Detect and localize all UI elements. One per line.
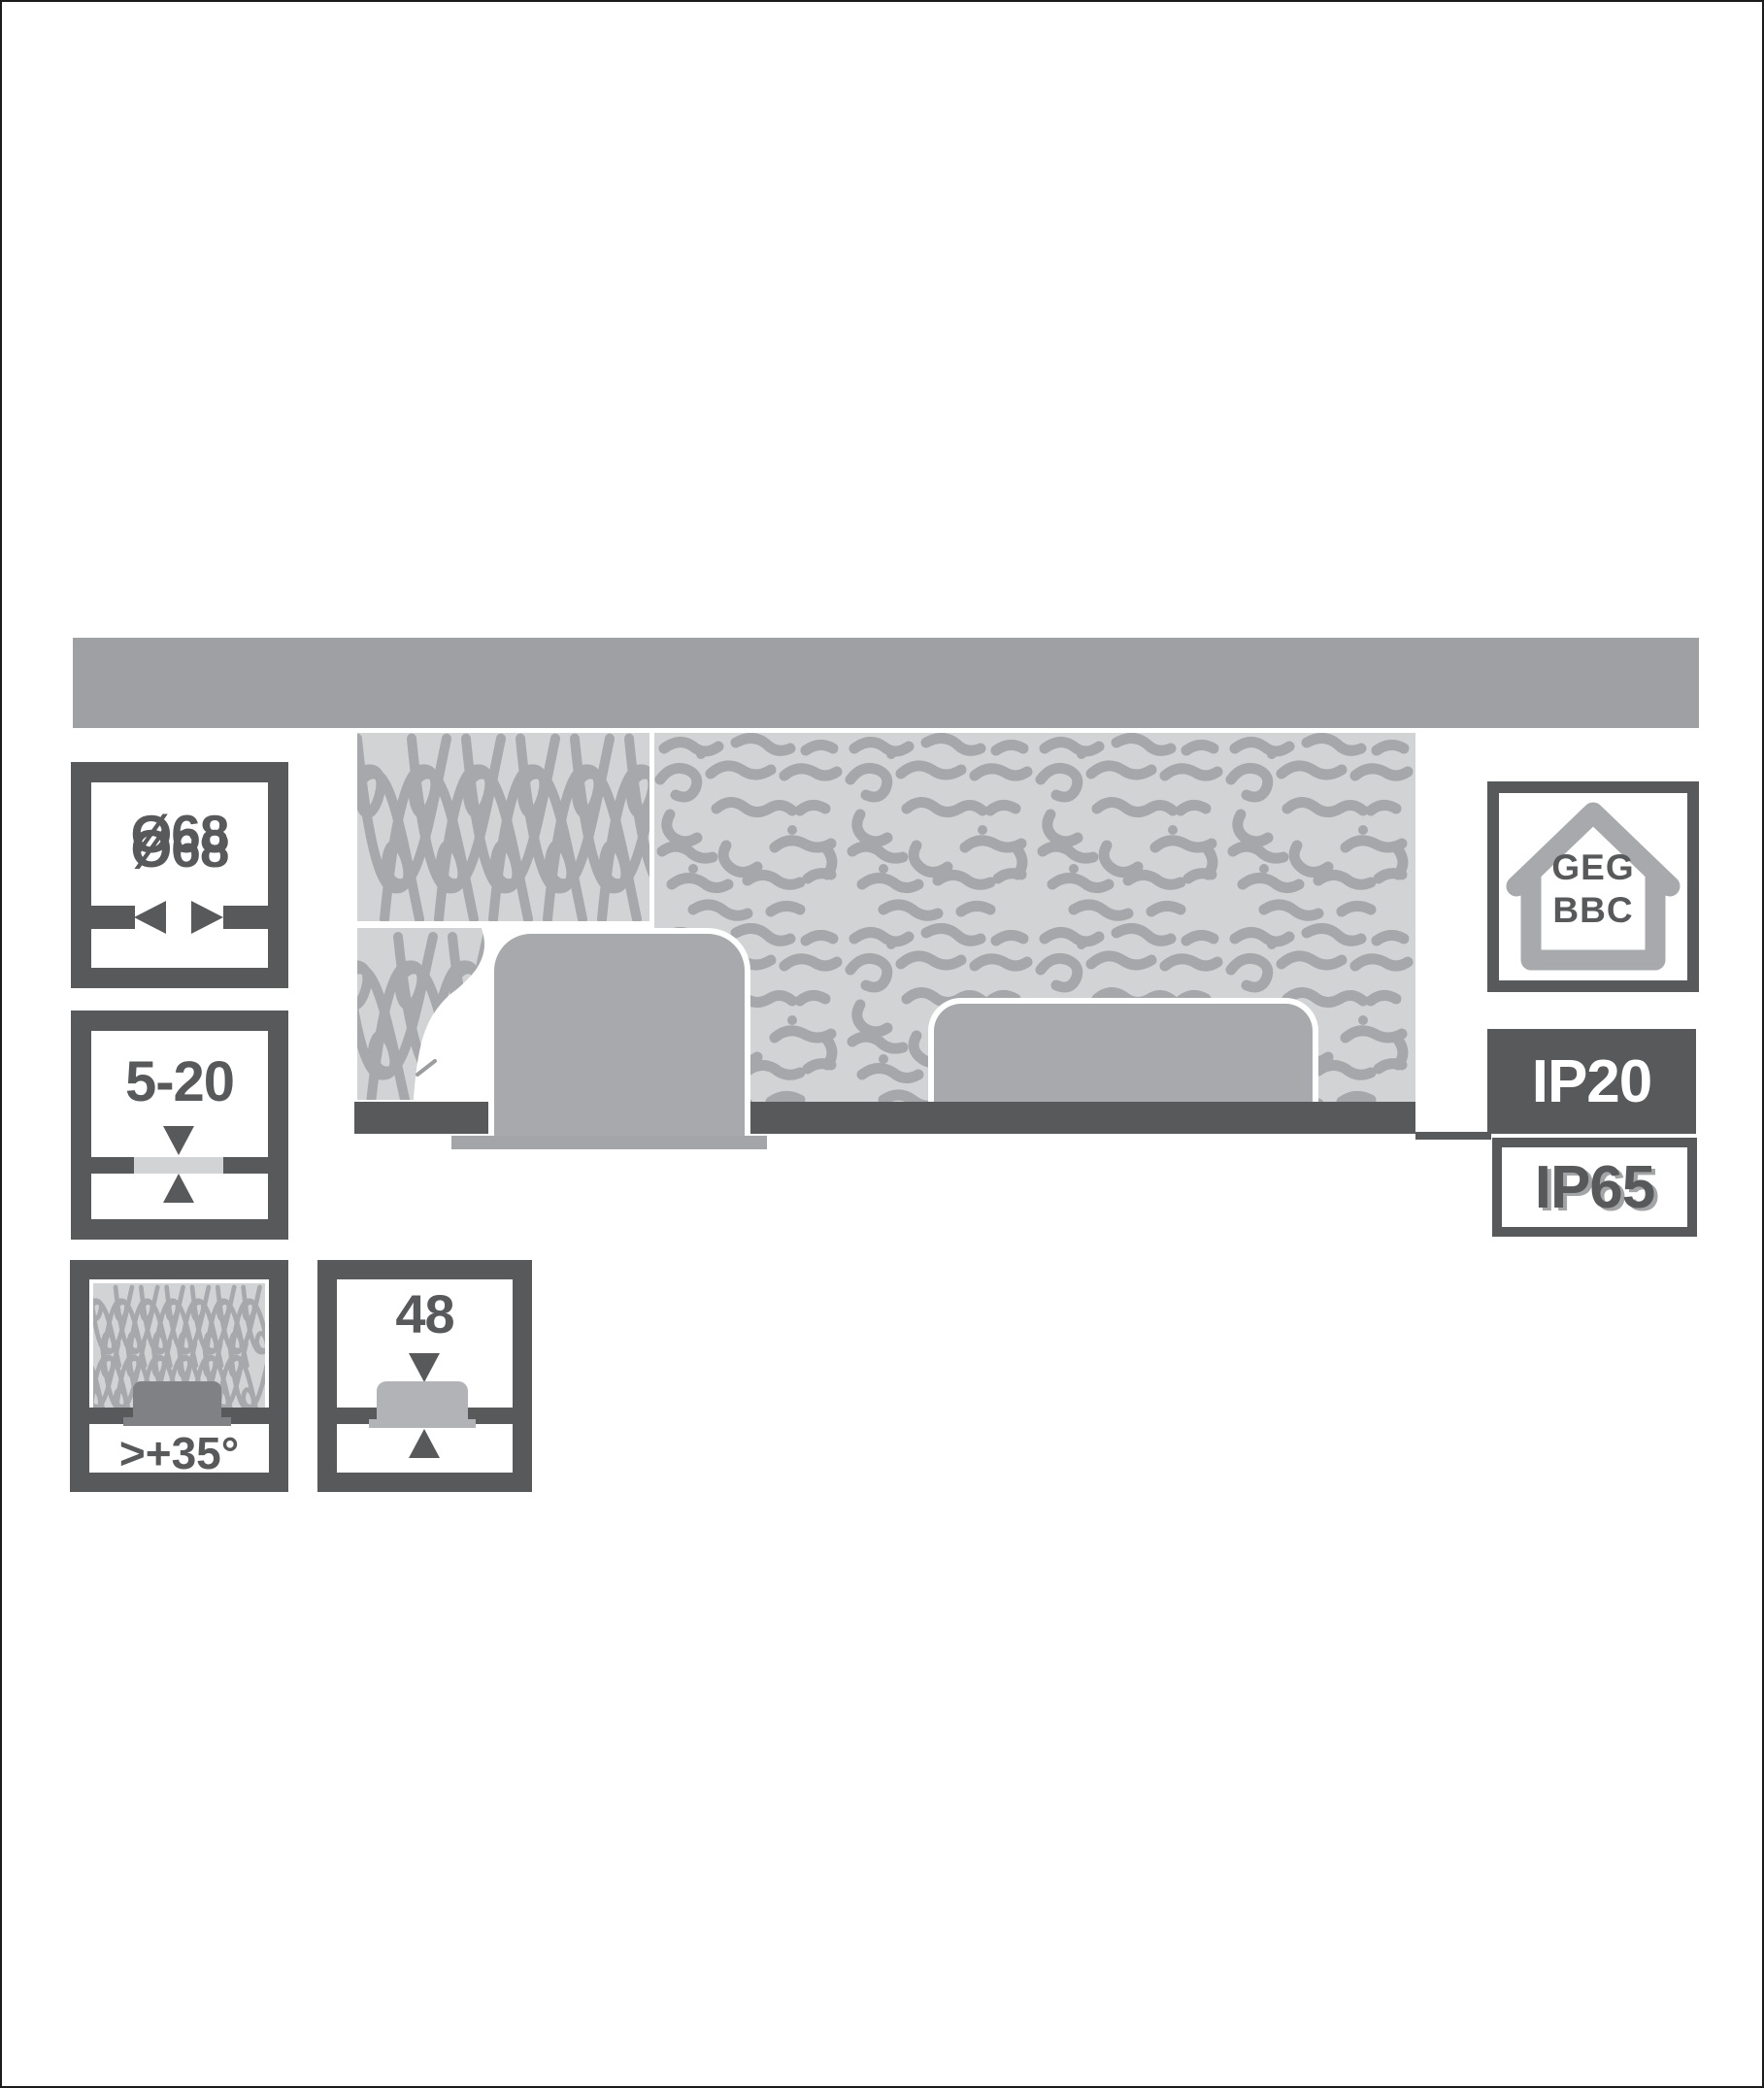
fixture-silhouette-flange (123, 1417, 231, 1426)
recess-depth-badge: 48 (317, 1260, 532, 1492)
depth-label: 48 (337, 1287, 513, 1342)
arrow-down-icon (163, 1126, 194, 1155)
panel-strip (134, 1157, 223, 1174)
building-code-badge: GEG BBC (1487, 781, 1699, 992)
panel-thickness-badge: 5-20 (71, 1011, 288, 1240)
fixture-shape (377, 1381, 468, 1420)
cutout-diameter-badge: Ø68 Ø68 (71, 762, 288, 988)
arrow-right-icon (191, 901, 223, 934)
driver-box (928, 998, 1318, 1102)
bbc-label: BBC (1499, 892, 1687, 928)
cutout-bar-right (223, 906, 268, 929)
leader-line (1415, 1132, 1491, 1140)
fixture-shape-flange (369, 1419, 476, 1428)
ip20-label: IP20 (1532, 1047, 1652, 1116)
ceiling-slab (73, 638, 1699, 728)
cutout-label-ghost: Ø68 (91, 822, 268, 876)
geg-label: GEG (1499, 849, 1687, 885)
ip65-label: IP65 (1535, 1153, 1655, 1222)
cutout-bar-left (91, 906, 135, 929)
insulation-temp-label: >+35° (89, 1431, 269, 1475)
arrow-down-icon (409, 1353, 440, 1382)
shelf-right (223, 1157, 268, 1174)
thickness-label: 5-20 (91, 1054, 268, 1110)
arrow-up-icon (163, 1174, 194, 1203)
installation-pictogram-sheet: Ø68 Ø68 5-20 >+35° 48 (0, 0, 1764, 2088)
downlight-housing (488, 928, 750, 1136)
ip20-badge: IP20 (1487, 1029, 1696, 1134)
arrow-up-icon (409, 1429, 440, 1458)
ip65-badge: IP65 (1492, 1138, 1697, 1237)
insulation-temperature-badge: >+35° (70, 1260, 288, 1492)
fixture-silhouette (133, 1381, 221, 1420)
downlight-flange (451, 1136, 767, 1149)
shelf-left (91, 1157, 134, 1174)
arrow-left-icon (134, 901, 166, 934)
